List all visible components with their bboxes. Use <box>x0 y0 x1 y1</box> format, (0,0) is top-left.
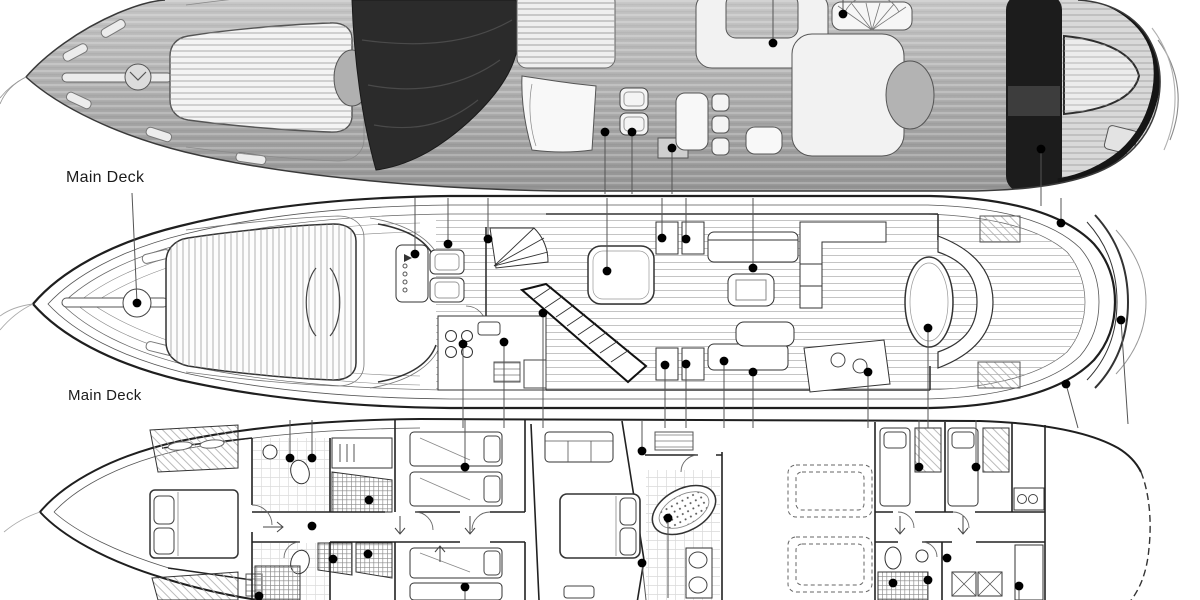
bar-cabinet <box>736 322 794 346</box>
callout-dot <box>661 361 670 370</box>
bow-waterlines <box>0 77 26 104</box>
lower-deck-hull-dashed <box>1128 472 1150 600</box>
main-bow-waterlines <box>0 304 33 330</box>
vip-wardrobe-fore <box>150 425 238 472</box>
callout-dot <box>972 463 981 472</box>
crew-mess <box>952 545 1043 600</box>
callout-dot <box>308 522 317 531</box>
master-sofa <box>545 432 613 462</box>
main-bow-rail <box>62 298 168 307</box>
crew-cabins <box>880 428 1044 510</box>
master-bench <box>564 586 594 598</box>
closet <box>332 438 392 468</box>
flybridge-table <box>676 93 708 150</box>
callout-dot <box>720 357 729 366</box>
vip-wardrobe-aft <box>152 572 238 600</box>
callout-dot <box>603 267 612 276</box>
callout-dot <box>500 338 509 347</box>
callout-dot <box>365 496 374 505</box>
galley-sink <box>478 322 500 335</box>
callout-dot <box>1057 219 1066 228</box>
callout-dot <box>1037 145 1046 154</box>
coffee-table <box>728 274 774 306</box>
callout-dot <box>668 144 677 153</box>
lower-stairs <box>655 432 693 450</box>
guest-cabin-fore <box>410 432 502 506</box>
sink <box>263 445 277 459</box>
callout-dot <box>915 463 924 472</box>
sink <box>689 552 707 568</box>
callout-dot <box>638 559 647 568</box>
callout-dot <box>924 576 933 585</box>
callout-dot <box>658 234 667 243</box>
callout-dot <box>255 592 264 600</box>
callout-dot <box>889 579 898 588</box>
master-pillow <box>620 528 636 555</box>
hardtop-step <box>1008 86 1060 116</box>
bow-rail <box>62 73 172 82</box>
top-deck-plan <box>0 0 1200 200</box>
foredeck-sunpad <box>170 23 370 132</box>
callout-dot <box>864 368 873 377</box>
flybridge-stools <box>712 94 729 155</box>
callout-dot <box>638 447 647 456</box>
callout-dot <box>444 240 453 249</box>
callout-dot <box>769 39 778 48</box>
callout-dot <box>459 340 468 349</box>
flybridge-floor-teak <box>517 0 615 68</box>
callout-dot <box>461 583 470 592</box>
main-foredeck-sunpad <box>166 216 364 386</box>
callout-dot <box>411 250 420 259</box>
callout-dot <box>133 299 142 308</box>
master-cabin <box>545 432 640 598</box>
anchor-windlass <box>125 64 151 90</box>
callout-dot <box>601 128 610 137</box>
callout-dot <box>749 368 758 377</box>
flybridge-windscreen <box>522 76 596 152</box>
callout-leader-line <box>642 563 646 600</box>
callout-dot <box>364 550 373 559</box>
callout-dot <box>539 309 548 318</box>
callout-dot <box>484 235 493 244</box>
callout-dot <box>749 264 758 273</box>
lower-bow-waterlines <box>4 512 40 532</box>
callout-dot <box>839 10 848 19</box>
vip-pillow <box>154 496 174 524</box>
shower-tray <box>356 543 392 578</box>
callout-dot <box>924 324 933 333</box>
yacht-ga-plan: Main Deck Main Deck <box>0 0 1200 600</box>
callout-dot <box>1117 316 1126 325</box>
shower-tray <box>878 572 928 600</box>
callout-dot <box>308 454 317 463</box>
toilet <box>885 547 901 569</box>
guest-cabin-aft <box>410 548 502 600</box>
master-bathroom <box>644 432 724 600</box>
crew-bathroom <box>878 547 928 600</box>
sun-lounger <box>746 127 782 154</box>
callout-dot <box>682 360 691 369</box>
galley-vent <box>494 362 520 382</box>
deck-plans-svg <box>0 0 1200 600</box>
callout-dot <box>1015 582 1024 591</box>
callout-dot <box>461 463 470 472</box>
callout-dot <box>1062 380 1071 389</box>
sink <box>689 577 707 593</box>
lower-view-deck-label: Main Deck <box>68 387 142 404</box>
wet-bar <box>804 340 890 392</box>
dining-table <box>588 246 654 304</box>
callout-dot <box>329 555 338 564</box>
callout-dot <box>286 454 295 463</box>
callout-leader-line <box>1066 384 1078 428</box>
engine-outlines <box>788 465 872 592</box>
callout-dot <box>628 128 637 137</box>
cockpit-table <box>905 257 953 347</box>
main-deck-label: Main Deck <box>66 169 144 187</box>
vip-pillow <box>154 528 174 554</box>
crew-locker <box>983 428 1009 472</box>
callout-dot <box>682 235 691 244</box>
master-pillow <box>620 498 636 525</box>
callout-dot <box>664 514 673 523</box>
lower-deck-plan <box>4 419 1150 600</box>
sink <box>916 550 928 562</box>
shower-tray <box>332 472 392 512</box>
main-deck-plan <box>0 196 1146 408</box>
vip-cabin <box>150 425 262 600</box>
callout-dot <box>943 554 952 563</box>
galley <box>438 316 546 390</box>
